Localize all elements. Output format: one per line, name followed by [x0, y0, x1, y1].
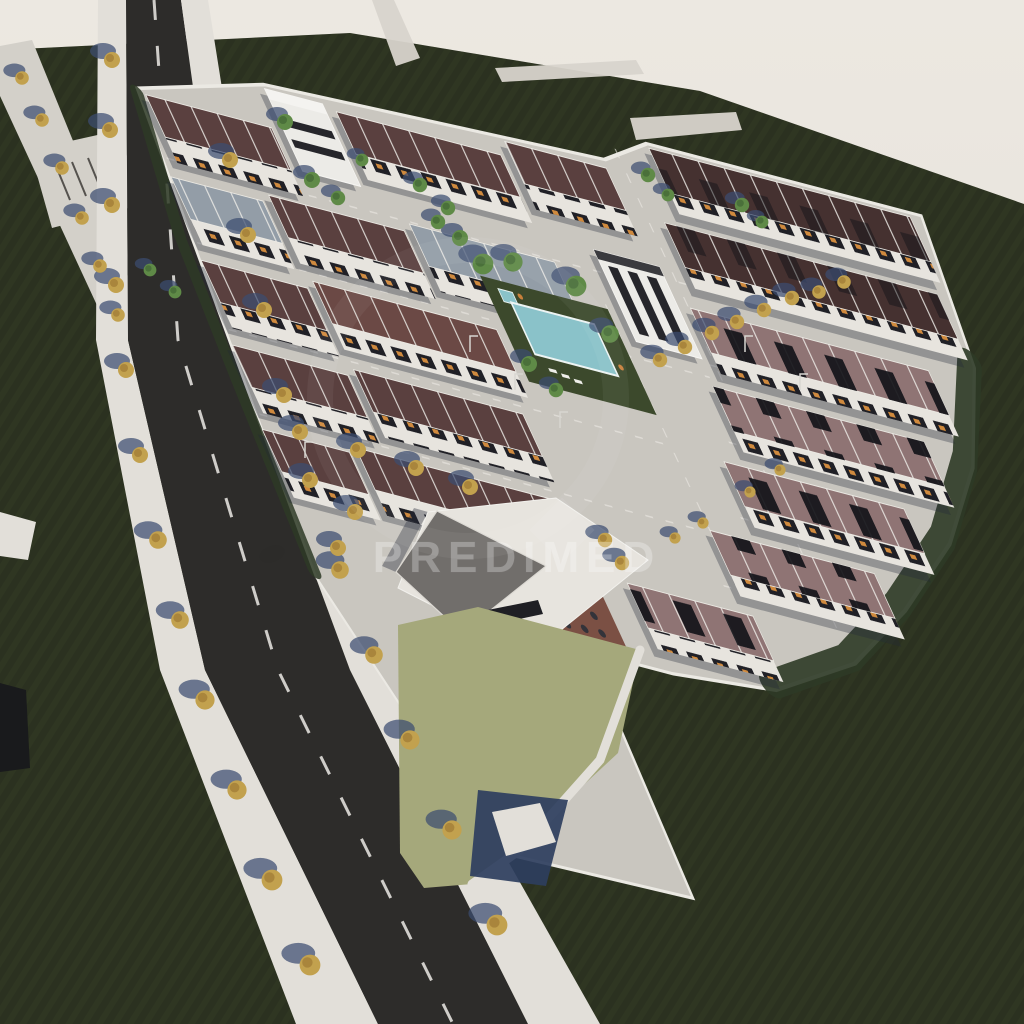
watermark-text: PREDIMED — [373, 533, 661, 582]
render-canvas: PREDIMED — [0, 0, 1024, 1024]
aerial-render: PREDIMED — [0, 0, 1024, 1024]
edge-dark-building — [0, 683, 30, 772]
